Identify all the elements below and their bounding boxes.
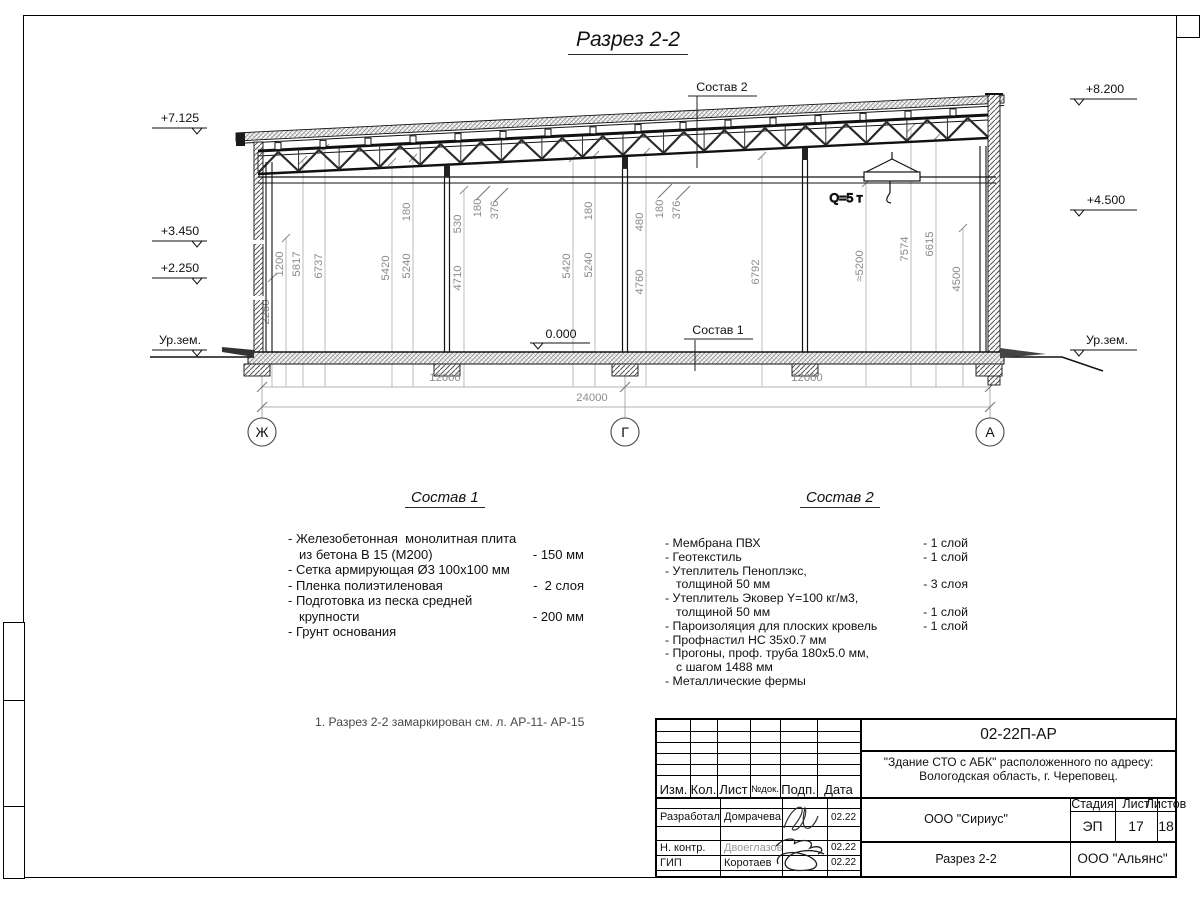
tb-sheet-value: 17	[1115, 811, 1157, 841]
tb-org-design: ООО "Сириус"	[862, 797, 1070, 841]
spec-text: - Грунт основания	[288, 624, 396, 640]
svg-text:+3.450: +3.450	[161, 224, 199, 238]
sostav1-title: Состав 1	[405, 489, 485, 508]
elevation-mark: +8.200	[1070, 82, 1137, 105]
dimension-label: 5817	[291, 251, 303, 276]
dimension-label: 5420	[561, 253, 573, 278]
dimension-label: 180	[401, 203, 413, 222]
tb-date: 02.22	[827, 808, 860, 826]
svg-text:+2.250: +2.250	[161, 261, 199, 275]
spec-text: - Геотекстиль	[665, 551, 742, 565]
crane-capacity-label: Q=5 т	[830, 191, 863, 205]
spec-text: - Прогоны, проф. труба 180х5.0 мм,	[665, 647, 869, 661]
roof-eave	[236, 133, 245, 146]
zero-level-mark: 0.000	[530, 327, 590, 349]
svg-text:+4.500: +4.500	[1087, 193, 1125, 207]
dimension-label: 7574	[899, 236, 911, 261]
floor-slab	[248, 352, 1004, 364]
spec-line: - Пароизоляция для плоских кровель- 1 сл…	[665, 620, 968, 634]
tb-col-izm: Изм.	[657, 782, 690, 797]
dimension-label: 180	[472, 199, 484, 218]
spec-text: - Утеплитель Эковер Y=100 кг/м3,	[665, 592, 858, 606]
spec-line: - Мембрана ПВХ- 1 слой	[665, 537, 968, 551]
dimension-label: 376	[671, 201, 683, 220]
dimension-label: 6615	[924, 231, 936, 256]
spec-text: толщиной 50 мм	[665, 606, 770, 620]
dimension-label: 1200	[274, 251, 286, 276]
crane-hook: Q=5 т	[830, 152, 920, 205]
spec-line: из бетона В 15 (М200)- 150 мм	[288, 547, 584, 563]
spec-value: - 1 слой	[923, 606, 968, 620]
axis-bubble: Ж	[248, 418, 276, 446]
dimension-label: 6792	[750, 259, 762, 284]
spec-text: - Пароизоляция для плоских кровель	[665, 620, 877, 634]
spec-value: - 2 слоя	[533, 578, 584, 594]
svg-text:+8.200: +8.200	[1086, 82, 1124, 96]
spec-line: - Геотекстиль- 1 слой	[665, 551, 968, 565]
spec-value: - 150 мм	[533, 547, 584, 563]
callout-sostav2: Состав 2	[688, 80, 757, 168]
tb-project-line2: Вологодская область, г. Череповец.	[862, 768, 1175, 784]
spec-line: - Утеплитель Пеноплэкс,	[665, 565, 968, 579]
spec-text: крупности	[288, 609, 359, 625]
tb-doc-number: 02-22П-АР	[862, 720, 1175, 750]
spec-line: - Грунт основания	[288, 624, 584, 640]
spec-text: - Пленка полиэтиленовая	[288, 578, 443, 594]
note-text: 1. Разрез 2-2 замаркирован см. л. АР-11-…	[315, 715, 584, 729]
spec-line: - Пленка полиэтиленовая- 2 слоя	[288, 578, 584, 594]
axis-bubble: Г	[611, 418, 639, 446]
dimension-label: ≈5200	[854, 250, 866, 281]
svg-text:Ж: Ж	[256, 424, 269, 440]
spec-line: толщиной 50 мм- 3 слоя	[665, 578, 968, 592]
tb-drawing-name: Разрез 2-2	[862, 841, 1070, 876]
vertical-dimensions: 2250120058176737542052401805304710180376…	[260, 124, 967, 387]
dimension-label: 180	[583, 202, 595, 221]
signature	[778, 800, 826, 836]
elevation-mark: +7.125	[152, 111, 207, 134]
spec-text: с шагом 1488 мм	[665, 661, 773, 675]
dimension-label: 5240	[401, 253, 413, 278]
dimension-ticks	[257, 184, 995, 412]
spec-line: - Сетка армирующая Ø3 100х100 мм	[288, 562, 584, 578]
sostav2-list: - Мембрана ПВХ- 1 слой- Геотекстиль- 1 с…	[665, 537, 968, 689]
spec-value: - 1 слой	[923, 537, 968, 551]
dimension-label: 180	[654, 200, 666, 219]
spec-text: - Сетка армирующая Ø3 100х100 мм	[288, 562, 510, 578]
spec-text: - Металлические фермы	[665, 675, 806, 689]
elevation-mark: +4.500	[1070, 193, 1137, 216]
tb-col-podp: Подп.	[780, 782, 817, 797]
dimension-label: 480	[634, 213, 646, 232]
dimension-label: 24000	[576, 392, 607, 404]
spec-line: - Утеплитель Эковер Y=100 кг/м3,	[665, 592, 968, 606]
spec-line: - Прогоны, проф. труба 180х5.0 мм,	[665, 647, 968, 661]
svg-text:Г: Г	[621, 424, 629, 440]
dimension-label: 530	[452, 215, 464, 234]
spec-text: - Утеплитель Пеноплэкс,	[665, 565, 807, 579]
tb-sheets-label: Листов	[1157, 797, 1175, 811]
elevation-mark: +2.250	[152, 261, 207, 284]
dimension-label: 4500	[951, 266, 963, 291]
spec-text: толщиной 50 мм	[665, 578, 770, 592]
spec-line: - Профнастил НС 35х0.7 мм	[665, 634, 968, 648]
drawing-sheet: Разрез 2-2	[0, 0, 1200, 900]
dimension-label: 6737	[313, 253, 325, 278]
dimension-label: 4710	[452, 265, 464, 290]
svg-text:Состав 1: Состав 1	[692, 323, 743, 337]
spec-line: с шагом 1488 мм	[665, 661, 968, 675]
svg-text:+7.125: +7.125	[161, 111, 199, 125]
title-block: Изм. Кол. Лист №док. Подп. Дата Разработ…	[655, 718, 1177, 878]
spec-text: - Подготовка из песка средней	[288, 593, 472, 609]
dimension-label: 376	[489, 201, 501, 220]
dimension-label: 12000	[429, 372, 460, 384]
tb-stage-value: ЭП	[1070, 811, 1115, 841]
tb-stage-label: Стадия	[1070, 797, 1115, 811]
spec-text: - Железобетонная монолитная плита	[288, 531, 516, 547]
spec-text: из бетона В 15 (М200)	[288, 547, 433, 563]
svg-text:Ур.зем.: Ур.зем.	[159, 333, 201, 347]
tb-org-customer: ООО "Альянс"	[1070, 841, 1175, 876]
tb-name: Домрачева	[724, 808, 782, 826]
tb-sheets-value: 18	[1157, 811, 1175, 841]
spec-text: - Профнастил НС 35х0.7 мм	[665, 634, 826, 648]
svg-text:Состав 2: Состав 2	[696, 80, 747, 94]
tb-col-dok: №док.	[750, 782, 780, 797]
spec-line: - Металлические фермы	[665, 675, 968, 689]
spec-line: крупности- 200 мм	[288, 609, 584, 625]
axis-bubble: А	[976, 418, 1004, 446]
tb-col-data: Дата	[817, 782, 860, 797]
tb-col-kol: Кол.	[690, 782, 717, 797]
signature	[772, 834, 832, 876]
sostav1-list: - Железобетонная монолитная плитаиз бето…	[288, 531, 584, 640]
spec-line: толщиной 50 мм- 1 слой	[665, 606, 968, 620]
spec-value: - 3 слоя	[923, 578, 968, 592]
spec-value: - 1 слой	[923, 620, 968, 634]
spec-line: - Железобетонная монолитная плита	[288, 531, 584, 547]
spec-value: - 200 мм	[533, 609, 584, 625]
dimension-label: 4760	[634, 269, 646, 294]
dimension-label: 5240	[583, 252, 595, 277]
tb-col-list: Лист	[717, 782, 750, 797]
sostav2-title: Состав 2	[800, 489, 880, 508]
tb-role: Н. контр.	[660, 840, 720, 855]
elevation-mark: +3.450	[152, 224, 207, 247]
svg-text:0.000: 0.000	[545, 327, 576, 341]
elevation-mark: Ур.зем.	[1070, 333, 1137, 356]
tb-role: ГИП	[660, 855, 720, 870]
spec-text: - Мембрана ПВХ	[665, 537, 761, 551]
dimension-label: 5420	[380, 255, 392, 280]
spec-value: - 1 слой	[923, 551, 968, 565]
dimension-label: 12000	[791, 372, 822, 384]
right-wall	[988, 94, 1000, 385]
svg-text:Ур.зем.: Ур.зем.	[1086, 333, 1128, 347]
horizontal-dimensions: 12000 12000 24000	[429, 372, 822, 404]
tb-role: Разработал	[660, 808, 720, 826]
elevation-mark: Ур.зем.	[152, 333, 207, 356]
roof-truss	[258, 109, 988, 352]
spec-line: - Подготовка из песка средней	[288, 593, 584, 609]
svg-text:А: А	[985, 424, 995, 440]
